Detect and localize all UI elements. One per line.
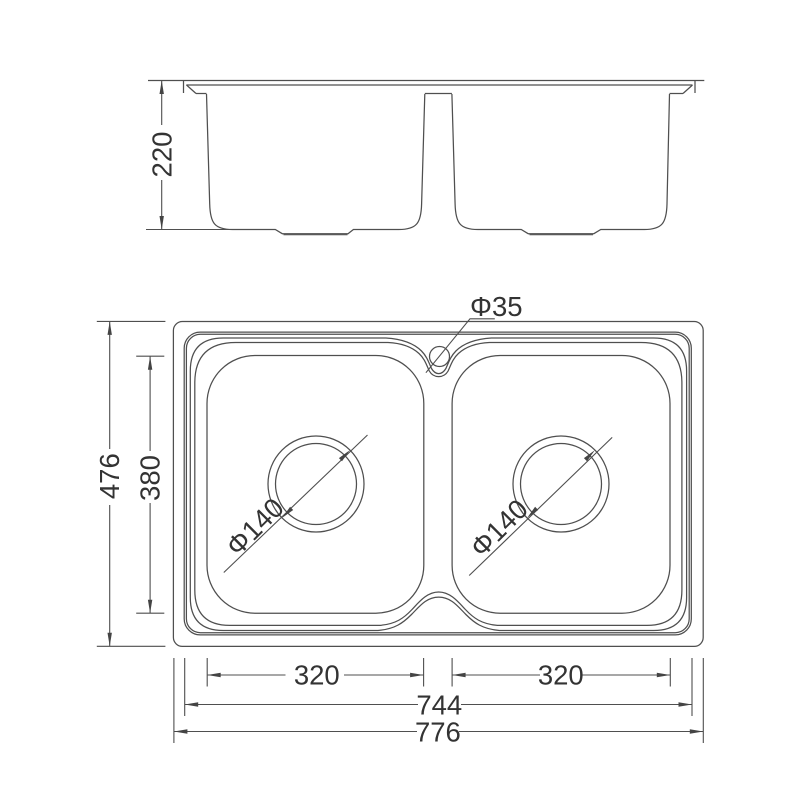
svg-text:320: 320: [294, 660, 340, 691]
svg-text:220: 220: [147, 132, 178, 178]
svg-text:Φ140: Φ140: [464, 493, 534, 563]
svg-text:380: 380: [134, 455, 165, 501]
svg-text:320: 320: [538, 660, 584, 691]
svg-text:476: 476: [94, 453, 125, 499]
svg-text:776: 776: [415, 717, 461, 748]
svg-text:Φ35: Φ35: [470, 291, 523, 322]
